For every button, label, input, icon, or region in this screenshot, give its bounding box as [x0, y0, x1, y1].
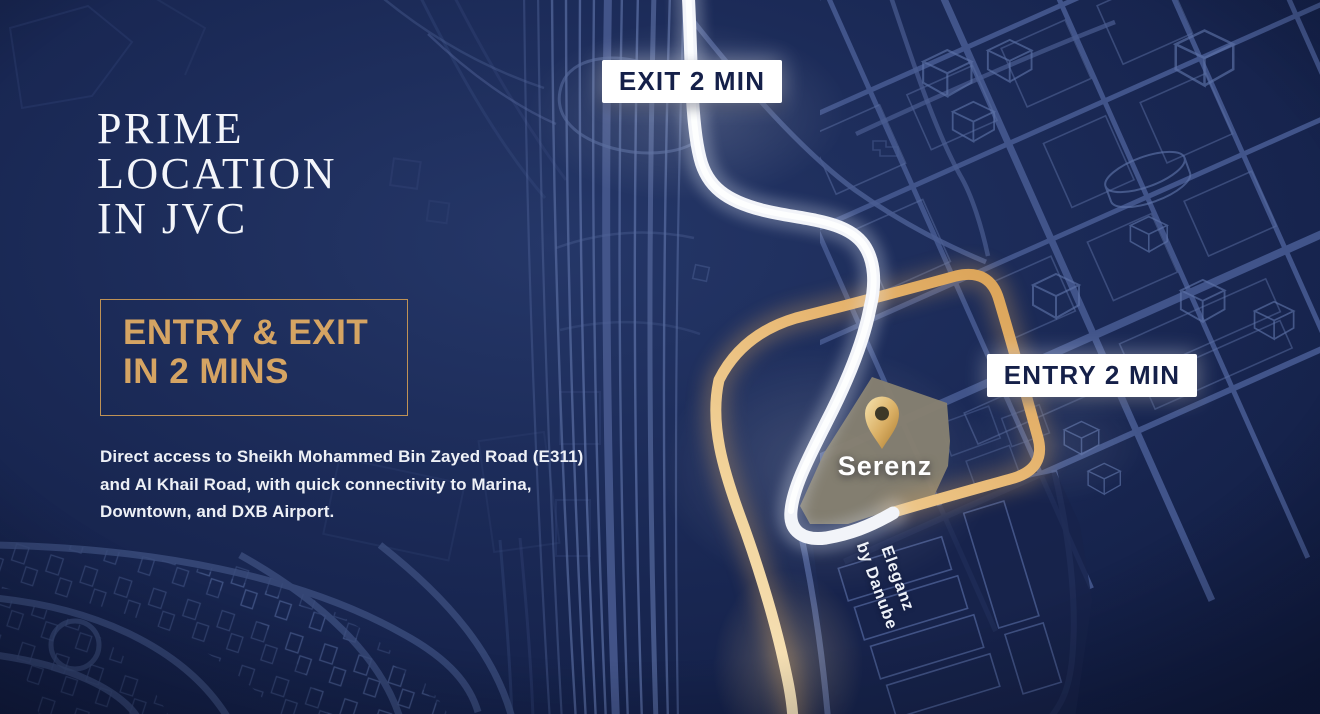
title-line: LOCATION [97, 151, 337, 196]
description-line: and Al Khail Road, with quick connectivi… [100, 471, 583, 499]
title-line: IN JVC [97, 196, 337, 241]
highlight-line: ENTRY & EXIT [123, 313, 407, 352]
description-line: Direct access to Sheikh Mohammed Bin Zay… [100, 443, 583, 471]
location-map-page: PRIME LOCATION IN JVC ENTRY & EXIT IN 2 … [0, 0, 1320, 714]
exit-time-badge: EXIT 2 MIN [602, 60, 782, 103]
entry-exit-highlight-box: ENTRY & EXIT IN 2 MINS [100, 299, 408, 416]
description-text: Direct access to Sheikh Mohammed Bin Zay… [100, 443, 583, 526]
title-line: PRIME [97, 106, 337, 151]
location-pin-icon [859, 393, 905, 451]
description-line: Downtown, and DXB Airport. [100, 498, 583, 526]
entry-time-badge: ENTRY 2 MIN [987, 354, 1197, 397]
project-label: Serenz [830, 451, 940, 482]
page-title: PRIME LOCATION IN JVC [97, 106, 337, 241]
highlight-line: IN 2 MINS [123, 352, 407, 391]
